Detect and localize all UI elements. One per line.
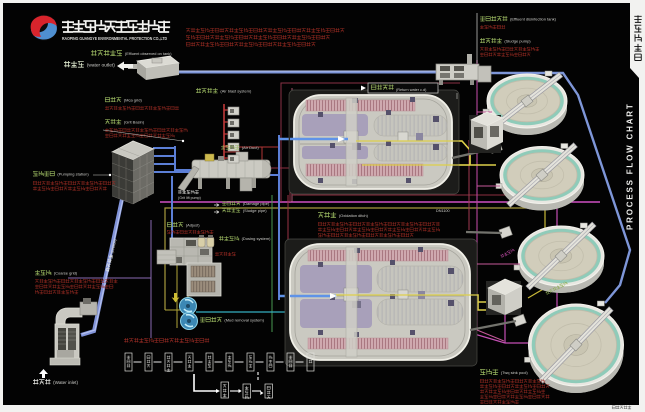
svg-text:(Effluent observed on tank): (Effluent observed on tank) — [125, 51, 172, 56]
svg-text:(Sludge pipe): (Sludge pipe) — [243, 208, 267, 213]
svg-text:(Water inlet): (Water inlet) — [53, 380, 78, 385]
svg-text:(Grit Basin): (Grit Basin) — [124, 120, 145, 125]
svg-text:(Return water c.d): (Return water c.d) — [396, 88, 427, 92]
svg-text:(Pumping station): (Pumping station) — [57, 172, 89, 177]
svg-text:(Air Duct): (Air Duct) — [242, 145, 260, 150]
svg-text:(Damage pipe): (Damage pipe) — [243, 201, 270, 206]
svg-text:(Grit lift pump): (Grit lift pump) — [178, 196, 201, 200]
svg-text:DN1100: DN1100 — [436, 209, 450, 213]
svg-text:(Dosing system): (Dosing system) — [242, 236, 272, 241]
svg-text:(Mud removal system): (Mud removal system) — [224, 318, 264, 323]
svg-text:(Oxidation ditch): (Oxidation ditch) — [339, 213, 369, 218]
svg-text:PROCESS FLOW CHART: PROCESS FLOW CHART — [626, 102, 635, 230]
svg-text:(water outlet): (water outlet) — [87, 63, 115, 69]
svg-text:(Coarse grid): (Coarse grid) — [54, 271, 78, 276]
svg-text:RAOPING GUANGYE ENVIRONMENTAL: RAOPING GUANGYE ENVIRONMENTAL PROTECTION… — [62, 36, 167, 41]
svg-text:(Sludge pump): (Sludge pump) — [504, 39, 531, 44]
svg-text:(Air blast system): (Air blast system) — [220, 89, 252, 94]
svg-text:(Mca grid): (Mca grid) — [124, 98, 143, 103]
svg-text:(Twq sink pool): (Twq sink pool) — [501, 370, 529, 375]
svg-text:(Effluent disinfection tank): (Effluent disinfection tank) — [510, 17, 557, 22]
svg-text:(Adjust): (Adjust) — [186, 223, 200, 228]
